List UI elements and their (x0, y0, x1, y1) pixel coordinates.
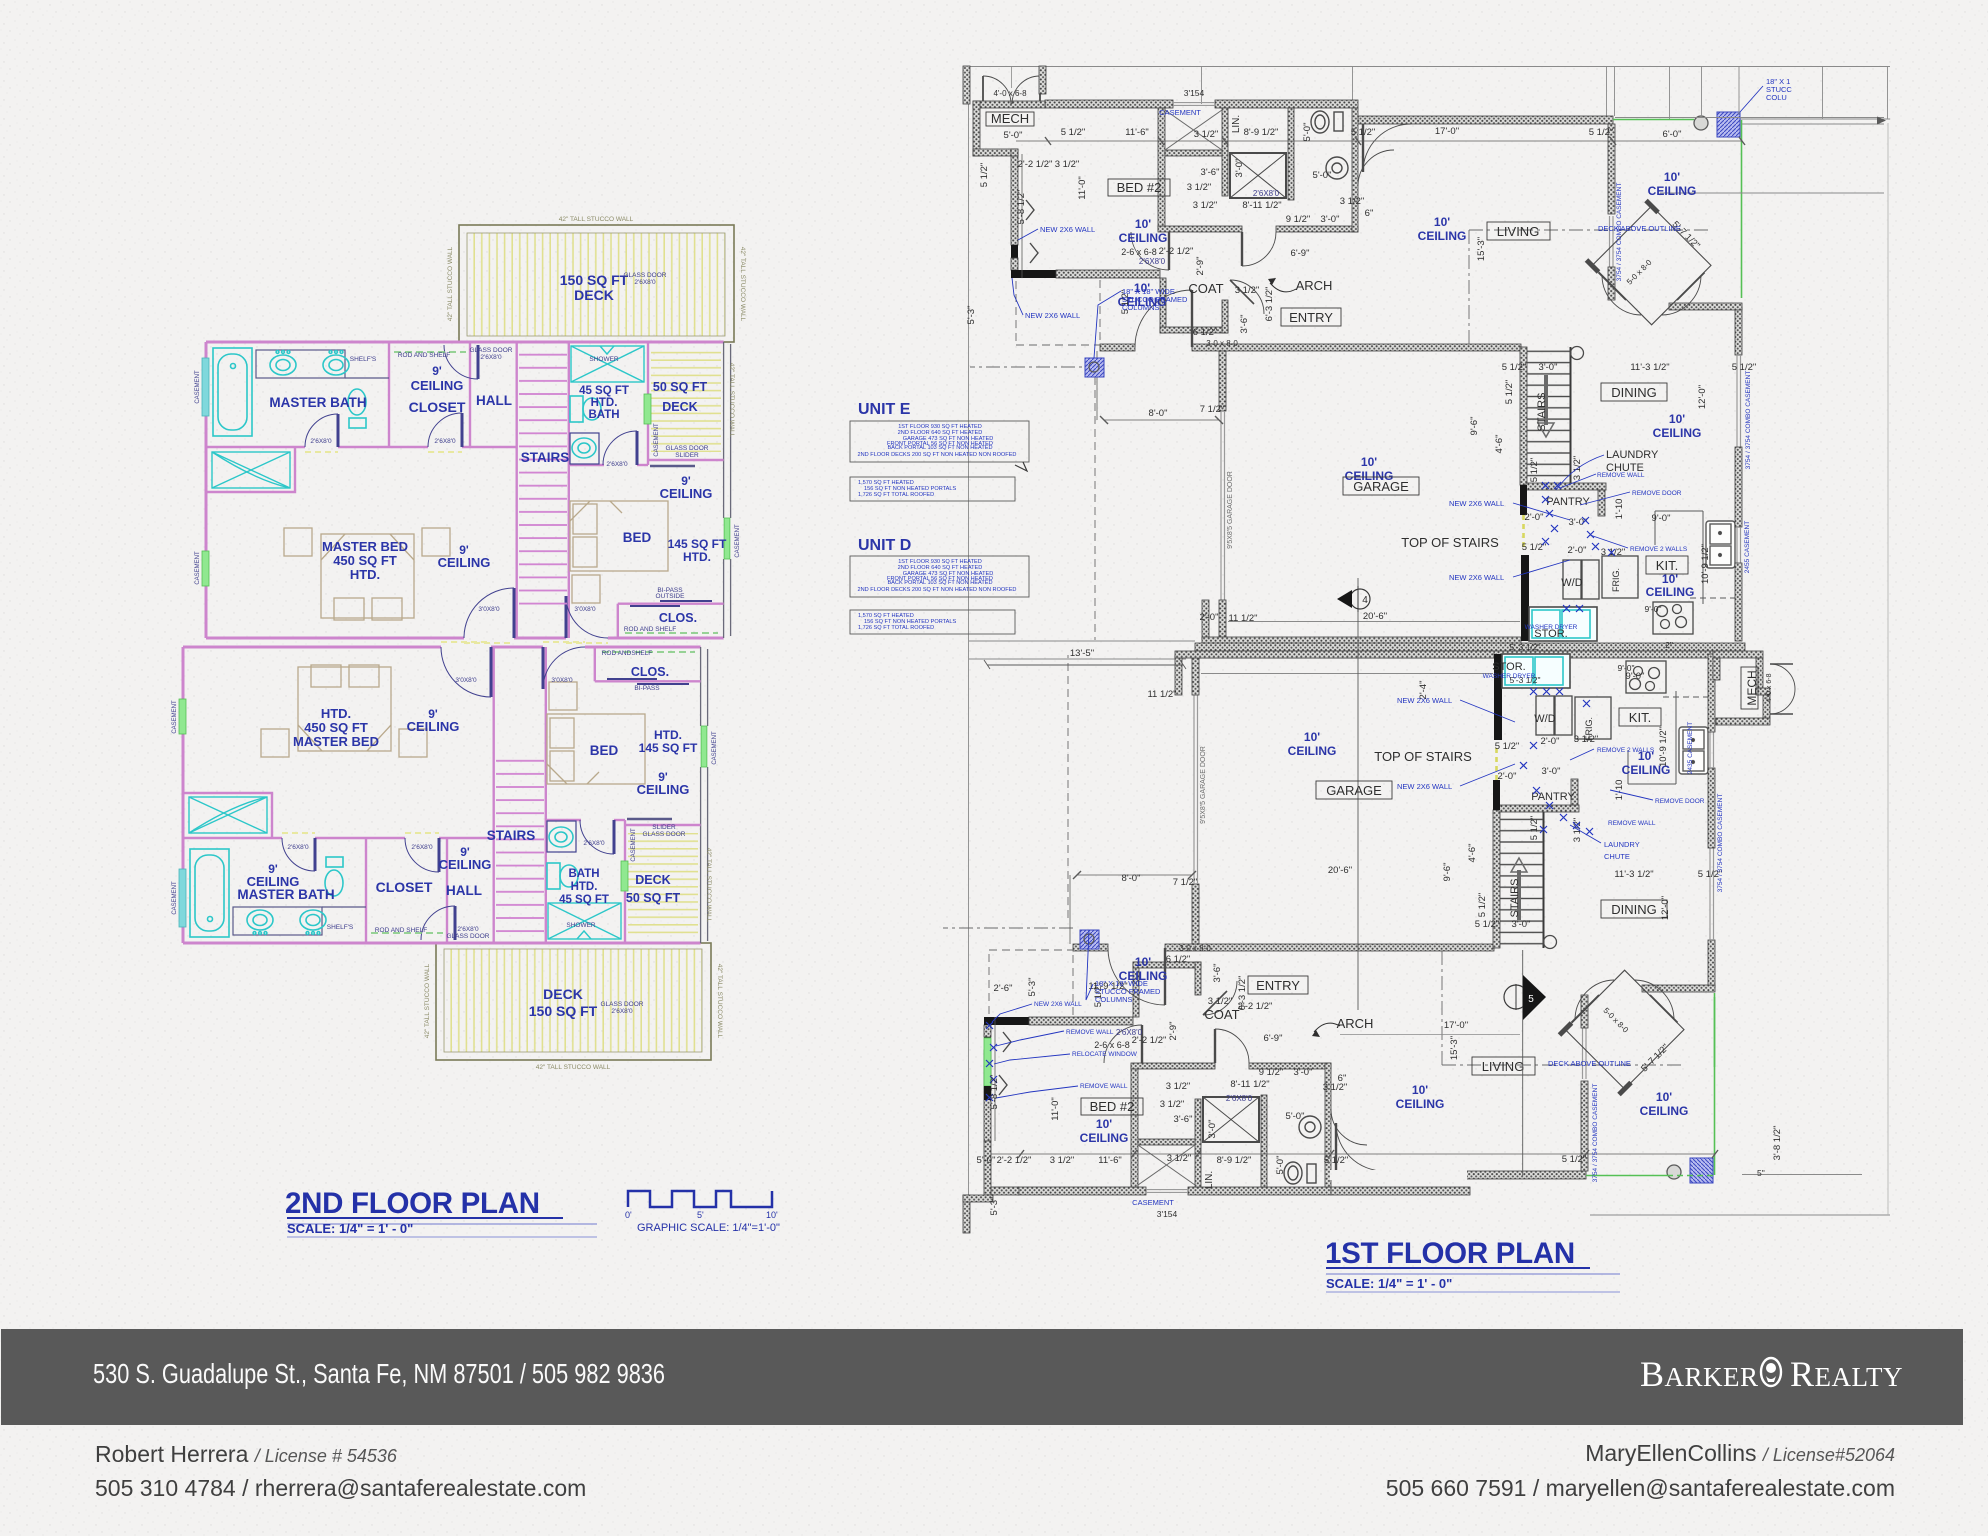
svg-text:3'-6": 3'-6" (1239, 315, 1250, 334)
svg-text:GLASS DOOR: GLASS DOOR (601, 1001, 644, 1008)
svg-text:17'-0": 17'-0" (1444, 1020, 1468, 1031)
svg-text:530 S. Guadalupe St., Santa Fe: 530 S. Guadalupe St., Santa Fe, NM 87501… (93, 1358, 665, 1389)
svg-text:CASEMENT: CASEMENT (735, 524, 741, 558)
svg-text:HTD.: HTD. (591, 397, 618, 409)
svg-text:2ND FLOOR PLAN: 2ND FLOOR PLAN (285, 1187, 540, 1220)
svg-text:8'-9 1/2": 8'-9 1/2" (1244, 127, 1279, 138)
svg-text:REMOVE WALL: REMOVE WALL (1597, 472, 1645, 479)
svg-text:5'-8 1/2": 5'-8 1/2" (989, 1075, 1000, 1110)
svg-text:RELOCATE WINDOW: RELOCATE WINDOW (1072, 1051, 1138, 1058)
svg-text:HTD.: HTD. (571, 881, 598, 893)
svg-text:5 1/2": 5 1/2" (1529, 816, 1540, 841)
svg-text:5'-8 1/2": 5'-8 1/2" (1016, 190, 1027, 225)
svg-text:5'-0": 5'-0" (1004, 130, 1023, 141)
svg-text:9 1/2": 9 1/2" (1286, 214, 1311, 225)
svg-text:STAIRS: STAIRS (487, 828, 536, 843)
svg-text:4'-0 x 6-8: 4'-0 x 6-8 (1766, 673, 1773, 702)
svg-text:10': 10' (1664, 170, 1680, 184)
svg-text:GLASS DOOR: GLASS DOOR (643, 831, 686, 838)
svg-text:CEILING: CEILING (1288, 744, 1337, 758)
svg-text:150 SQ FT: 150 SQ FT (560, 272, 629, 288)
svg-text:3 1/2": 3 1/2" (1208, 996, 1233, 1007)
svg-text:MASTER BATH: MASTER BATH (269, 395, 366, 410)
svg-text:BACK PORTAL 103 SQ FT NON HEAT: BACK PORTAL 103 SQ FT NON HEATED (887, 580, 992, 586)
svg-text:8'-11 1/2": 8'-11 1/2" (1242, 200, 1281, 211)
svg-text:3754 / 3754 COMBO CASEMENT: 3754 / 3754 COMBO CASEMENT (1717, 794, 1724, 893)
svg-text:BACK PORTAL 103 SQ FT NON HEAT: BACK PORTAL 103 SQ FT NON HEATED (887, 445, 992, 451)
svg-text:BED #2: BED #2 (1090, 1099, 1135, 1114)
svg-text:5": 5" (1757, 1168, 1765, 1178)
svg-text:3 1/2": 3 1/2" (1160, 1099, 1185, 1110)
svg-text:CASEMENT: CASEMENT (172, 700, 178, 734)
svg-text:BED: BED (623, 530, 652, 545)
svg-text:7 1/2": 7 1/2" (1173, 877, 1198, 888)
svg-text:GLASS DOOR: GLASS DOOR (666, 445, 709, 452)
svg-text:CEILING: CEILING (1640, 1104, 1689, 1118)
svg-text:2'6X8'0: 2'6X8'0 (583, 840, 605, 847)
svg-text:CASEMENT: CASEMENT (654, 423, 660, 457)
svg-text:PANTRY: PANTRY (1546, 496, 1590, 508)
svg-text:10'-9 1/2": 10'-9 1/2" (1658, 727, 1669, 767)
svg-text:2'-2 1/2": 2'-2 1/2" (997, 1155, 1032, 1166)
svg-text:WASHER DRYER: WASHER DRYER (1525, 624, 1578, 631)
svg-text:2'-0": 2'-0" (1200, 612, 1219, 623)
svg-text:3'0X8'0: 3'0X8'0 (574, 606, 596, 613)
svg-text:42" TALL STUCCO WALL: 42" TALL STUCCO WALL (536, 1064, 611, 1071)
svg-text:450 SQ FT: 450 SQ FT (333, 553, 397, 568)
svg-text:42" TALL STUCCO WALL: 42" TALL STUCCO WALL (447, 246, 454, 321)
svg-text:11'-6": 11'-6" (1125, 127, 1149, 138)
svg-text:10': 10' (1669, 412, 1685, 426)
svg-text:450 SQ FT: 450 SQ FT (304, 720, 368, 735)
svg-text:KIT.: KIT. (1629, 710, 1651, 725)
svg-text:17'-0": 17'-0" (1435, 126, 1459, 137)
svg-text:CLOS.: CLOS. (631, 665, 669, 679)
svg-text:COLUMNS: COLUMNS (1122, 303, 1160, 312)
svg-text:REMOVE WALL: REMOVE WALL (1080, 1083, 1128, 1090)
svg-text:0': 0' (625, 1210, 632, 1220)
svg-text:NEW 2X6 WALL: NEW 2X6 WALL (1040, 225, 1095, 234)
svg-text:NEW 2X6 WALL: NEW 2X6 WALL (1449, 499, 1504, 508)
svg-text:CEILING: CEILING (1648, 184, 1697, 198)
svg-text:42" TALL STUCCO WALL: 42" TALL STUCCO WALL (705, 848, 712, 923)
svg-text:2ND FLOOR DECKS 200 SQ FT NON: 2ND FLOOR DECKS 200 SQ FT NON HEATED NON… (858, 587, 1017, 593)
svg-text:5 1/2": 5 1/2" (1477, 893, 1488, 918)
svg-text:CLOSET: CLOSET (409, 399, 466, 415)
svg-text:ENTRY: ENTRY (1256, 978, 1300, 993)
svg-text:CASEMENT: CASEMENT (631, 828, 637, 862)
svg-text:ARCH: ARCH (1337, 1016, 1374, 1031)
svg-text:2'-6": 2'-6" (994, 983, 1013, 994)
svg-text:HTD.: HTD. (654, 728, 682, 742)
svg-text:2'-2 1/2": 2'-2 1/2" (1018, 159, 1053, 170)
svg-text:DECK: DECK (543, 986, 583, 1002)
svg-text:CASEMENT: CASEMENT (172, 881, 178, 915)
svg-text:5'-3": 5'-3" (989, 1197, 1000, 1216)
svg-text:CASEMENT: CASEMENT (1159, 108, 1201, 117)
svg-text:2'6X8'0: 2'6X8'0 (480, 354, 502, 361)
svg-text:11 1/2": 11 1/2" (1147, 689, 1176, 700)
svg-text:3 1/2": 3 1/2" (1194, 129, 1219, 140)
svg-text:3'-8 1/2": 3'-8 1/2" (1772, 1126, 1783, 1161)
svg-text:5 1/2": 5 1/2" (1504, 380, 1515, 405)
svg-text:9'5X8'5 GARAGE DOOR: 9'5X8'5 GARAGE DOOR (1200, 746, 1207, 824)
svg-text:HALL: HALL (446, 883, 482, 898)
svg-text:2'-2 1/2": 2'-2 1/2" (1159, 246, 1194, 257)
svg-text:12'-0": 12'-0" (1697, 385, 1708, 409)
svg-text:5'-0": 5'-0" (1286, 1111, 1305, 1122)
svg-text:DINING: DINING (1611, 902, 1657, 917)
svg-text:STOR.: STOR. (1492, 661, 1525, 673)
svg-text:1'-10: 1'-10 (1614, 499, 1625, 520)
svg-text:8'-9 1/2": 8'-9 1/2" (1217, 1155, 1252, 1166)
svg-text:TOP OF STAIRS: TOP OF STAIRS (1401, 535, 1499, 550)
svg-text:LIVING: LIVING (1497, 224, 1540, 239)
svg-text:6'-0": 6'-0" (1663, 129, 1682, 140)
svg-text:11'-0": 11'-0" (1077, 176, 1088, 200)
svg-text:3'-6": 3'-6" (1212, 964, 1223, 983)
svg-text:CEILING: CEILING (637, 782, 690, 797)
svg-text:6'-9": 6'-9" (1291, 248, 1310, 259)
svg-text:2'6X8'0: 2'6X8'0 (606, 461, 628, 468)
svg-text:5 1/2": 5 1/2" (1589, 127, 1614, 138)
svg-text:2'6X8'0: 2'6X8'0 (434, 438, 456, 445)
svg-text:2'6X8'0: 2'6X8'0 (1226, 1094, 1253, 1103)
svg-text:3 1/2": 3 1/2" (1572, 818, 1583, 843)
svg-text:2-6 x 6-8: 2-6 x 6-8 (1121, 247, 1157, 257)
svg-text:CEILING: CEILING (1418, 229, 1467, 243)
svg-text:2'6X8'0: 2'6X8'0 (1116, 1028, 1143, 1037)
svg-text:CHUTE: CHUTE (1604, 852, 1630, 861)
svg-text:3-0 x 8-0: 3-0 x 8-0 (1179, 944, 1211, 953)
svg-text:GLASS DOOR: GLASS DOOR (447, 933, 490, 940)
svg-text:9'-0": 9'-0" (1618, 663, 1635, 673)
svg-text:3'-6": 3'-6" (1201, 167, 1220, 178)
svg-text:10': 10' (1304, 730, 1320, 744)
svg-text:12'-0": 12'-0" (1660, 896, 1671, 920)
svg-text:8'-0": 8'-0" (1122, 873, 1141, 884)
svg-text:2": 2" (1665, 640, 1673, 650)
svg-text:BED: BED (590, 743, 619, 758)
svg-text:MASTER BED: MASTER BED (293, 734, 379, 749)
svg-text:2'6X8'0: 2'6X8'0 (611, 1008, 633, 1015)
svg-text:2435 CASEMENT: 2435 CASEMENT (1687, 722, 1694, 774)
svg-text:8'-0": 8'-0" (1149, 408, 1168, 419)
svg-text:1'-10: 1'-10 (1614, 780, 1625, 801)
svg-text:2'6X8'0: 2'6X8'0 (1253, 189, 1280, 198)
svg-text:HTD.: HTD. (321, 706, 351, 721)
svg-text:CEILING: CEILING (1080, 1131, 1129, 1145)
svg-text:3'-0": 3'-0" (1542, 766, 1561, 777)
svg-text:9 1/2": 9 1/2" (1259, 1067, 1284, 1078)
svg-text:3754 / 3754 COMBO CASEMENT: 3754 / 3754 COMBO CASEMENT (1616, 183, 1623, 282)
svg-text:5 1/2": 5 1/2" (1061, 127, 1086, 138)
svg-text:5 1/2": 5 1/2" (1495, 741, 1520, 752)
svg-text:2455 CASEMENT: 2455 CASEMENT (1744, 521, 1751, 573)
svg-text:5: 5 (1528, 994, 1534, 1005)
svg-text:W/D: W/D (1534, 713, 1555, 725)
svg-text:11'-0": 11'-0" (1050, 1097, 1061, 1121)
svg-text:DECK: DECK (635, 873, 670, 887)
svg-text:11'-3 1/2": 11'-3 1/2" (1614, 869, 1653, 880)
svg-text:13'-5": 13'-5" (1070, 648, 1094, 659)
svg-text:8'-11 1/2": 8'-11 1/2" (1230, 1079, 1269, 1090)
svg-text:5 1/2": 5 1/2" (1529, 458, 1540, 483)
svg-text:11 1/2": 11 1/2" (1228, 613, 1257, 624)
svg-text:150 SQ FT: 150 SQ FT (529, 1003, 598, 1019)
svg-text:LAUNDRY: LAUNDRY (1604, 840, 1640, 849)
svg-text:BATH: BATH (588, 409, 619, 421)
svg-text:BI-PASS: BI-PASS (634, 685, 660, 692)
svg-text:3'0X8'0: 3'0X8'0 (551, 677, 573, 684)
svg-text:ARCH: ARCH (1296, 278, 1333, 293)
svg-text:2'-0": 2'-0" (1568, 545, 1587, 556)
svg-text:CASEMENT: CASEMENT (1132, 1198, 1174, 1207)
svg-text:2'6X8'0: 2'6X8'0 (457, 926, 479, 933)
svg-text:DECK: DECK (662, 400, 697, 414)
svg-text:MASTER BATH: MASTER BATH (237, 887, 334, 902)
svg-text:5 1/2": 5 1/2" (979, 163, 990, 188)
svg-text:SHELF'S: SHELF'S (327, 924, 354, 931)
svg-text:COLU: COLU (1766, 93, 1787, 102)
svg-text:2'6X8'0: 2'6X8'0 (310, 438, 332, 445)
svg-text:COAT: COAT (1204, 1007, 1239, 1022)
svg-text:5 1/2": 5 1/2" (1502, 362, 1527, 373)
svg-text:GARAGE: GARAGE (1326, 783, 1382, 798)
svg-text:3 1/2": 3 1/2" (1340, 196, 1365, 207)
svg-text:4'-6": 4'-6" (1494, 435, 1505, 454)
svg-text:6'-9": 6'-9" (1264, 1033, 1283, 1044)
svg-text:5': 5' (697, 1210, 704, 1220)
svg-text:3 1/2": 3 1/2" (1235, 285, 1260, 296)
svg-text:3'-0": 3'-0" (1207, 1120, 1218, 1139)
svg-text:5'-3 1/2": 5'-3 1/2" (1509, 642, 1540, 652)
svg-text:1,726 SQ FT TOTAL ROOFED: 1,726 SQ FT TOTAL ROOFED (858, 492, 934, 498)
svg-text:NEW 2X6 WALL: NEW 2X6 WALL (1449, 573, 1504, 582)
svg-text:1ST FLOOR PLAN: 1ST FLOOR PLAN (1325, 1237, 1575, 1270)
svg-text:REMOVE 2 WALLS: REMOVE 2 WALLS (1630, 546, 1688, 553)
svg-text:5'-0": 5'-0" (1302, 123, 1313, 142)
svg-text:2'-0": 2'-0" (1525, 512, 1544, 523)
svg-text:10': 10' (766, 1210, 778, 1220)
svg-text:3'-6": 3'-6" (1174, 1114, 1193, 1125)
svg-text:6'-3 1/2": 6'-3 1/2" (1264, 287, 1275, 322)
svg-text:UNIT D: UNIT D (858, 537, 911, 554)
svg-text:NEW 2X6 WALL: NEW 2X6 WALL (1397, 782, 1452, 791)
svg-text:CEILING: CEILING (407, 719, 460, 734)
svg-text:15'-3": 15'-3" (1476, 237, 1487, 261)
svg-text:2'-0": 2'-0" (1498, 771, 1517, 782)
svg-text:3 1/2": 3 1/2" (1055, 159, 1080, 170)
svg-text:WASHER DRYER: WASHER DRYER (1483, 673, 1536, 680)
svg-text:145 SQ FT: 145 SQ FT (668, 537, 727, 551)
svg-text:SHELF'S: SHELF'S (350, 356, 377, 363)
svg-text:ROD AND SHELF: ROD AND SHELF (624, 626, 676, 633)
svg-text:3754 / 3754 COMBO CASEMENT: 3754 / 3754 COMBO CASEMENT (1592, 1084, 1599, 1183)
svg-text:SHOWER: SHOWER (589, 356, 619, 363)
svg-text:FRIG.: FRIG. (1611, 568, 1621, 592)
svg-text:5 1/2": 5 1/2" (1562, 1154, 1587, 1165)
svg-text:ENTRY: ENTRY (1289, 310, 1333, 325)
svg-text:CASEMENT: CASEMENT (195, 370, 201, 404)
svg-text:2'6X8'0: 2'6X8'0 (411, 844, 433, 851)
svg-text:MECH: MECH (991, 111, 1029, 126)
svg-text:2'6X8'0: 2'6X8'0 (287, 844, 309, 851)
svg-text:1,726 SQ FT TOTAL ROOFED: 1,726 SQ FT TOTAL ROOFED (858, 625, 934, 631)
svg-text:3'-0": 3'-0" (1512, 919, 1531, 930)
svg-text:9'5X8'5 GARAGE DOOR: 9'5X8'5 GARAGE DOOR (1227, 471, 1234, 549)
svg-text:42" TALL STUCCO WALL: 42" TALL STUCCO WALL (716, 964, 723, 1039)
svg-text:3 1/2": 3 1/2" (1601, 547, 1626, 558)
svg-text:BATH: BATH (568, 868, 599, 880)
svg-text:4'-0 x 6-8: 4'-0 x 6-8 (993, 89, 1027, 98)
svg-text:9'-6": 9'-6" (1469, 417, 1480, 436)
svg-text:50 SQ FT: 50 SQ FT (653, 380, 708, 394)
svg-text:6'-3 1/2": 6'-3 1/2" (1237, 976, 1248, 1011)
svg-text:NEW 2X6 WALL: NEW 2X6 WALL (1034, 1001, 1082, 1008)
svg-text:42" TALL STUCCO WALL: 42" TALL STUCCO WALL (728, 363, 735, 438)
svg-text:3'-0": 3'-0" (1539, 362, 1558, 373)
svg-text:NEW 2X6 WALL: NEW 2X6 WALL (1025, 311, 1080, 320)
svg-text:GRAPHIC SCALE: 1/4"=1'-0": GRAPHIC SCALE: 1/4"=1'-0" (637, 1222, 780, 1234)
svg-text:TOP OF STAIRS: TOP OF STAIRS (1374, 749, 1472, 764)
svg-text:3 1/2": 3 1/2" (1187, 182, 1212, 193)
svg-text:DECK ABOVE OUTLINE: DECK ABOVE OUTLINE (1598, 224, 1681, 233)
svg-text:CEILING: CEILING (1396, 1097, 1445, 1111)
svg-text:CEILING: CEILING (660, 486, 713, 501)
svg-text:6": 6" (1365, 208, 1374, 219)
svg-text:3'0X8'0: 3'0X8'0 (478, 606, 500, 613)
svg-text:9': 9' (432, 364, 442, 378)
svg-text:5 1/2": 5 1/2" (1475, 919, 1500, 930)
svg-text:KIT.: KIT. (1656, 558, 1678, 573)
svg-text:10': 10' (1434, 215, 1450, 229)
svg-text:10'-9 1/2": 10'-9 1/2" (1700, 544, 1711, 584)
svg-text:REMOVE WALL: REMOVE WALL (1066, 1029, 1114, 1036)
svg-text:50 SQ FT: 50 SQ FT (626, 891, 681, 905)
svg-text:CLOS.: CLOS. (659, 611, 697, 625)
svg-text:CASEMENT: CASEMENT (195, 551, 201, 585)
svg-text:4'-6": 4'-6" (1467, 844, 1478, 863)
svg-text:5'-0": 5'-0" (977, 1155, 996, 1166)
svg-text:10': 10' (1135, 955, 1151, 969)
svg-text:3754 / 3754 COMBO CASEMENT: 3754 / 3754 COMBO CASEMENT (1745, 371, 1752, 470)
svg-text:3'-0": 3'-0" (1234, 159, 1245, 178)
svg-text:505 660 7591 / maryellen@santa: 505 660 7591 / maryellen@santaferealesta… (1386, 1475, 1895, 1501)
svg-text:5'-0": 5'-0" (1275, 1156, 1286, 1175)
svg-text:MASTER BED: MASTER BED (322, 539, 408, 554)
svg-text:5'-3": 5'-3" (1027, 978, 1038, 997)
svg-text:SCALE: 1/4" = 1' - 0": SCALE: 1/4" = 1' - 0" (1326, 1276, 1452, 1291)
svg-text:CEILING: CEILING (1653, 426, 1702, 440)
svg-text:REMOVE DOOR: REMOVE DOOR (1655, 798, 1705, 805)
svg-text:10': 10' (1361, 455, 1377, 469)
svg-text:45 SQ FT: 45 SQ FT (559, 894, 609, 906)
svg-text:REMOVE WALL: REMOVE WALL (1608, 820, 1656, 827)
svg-text:COAT: COAT (1188, 281, 1223, 296)
svg-text:STAIRS: STAIRS (521, 450, 570, 465)
svg-text:REMOVE 2 WALLS: REMOVE 2 WALLS (1597, 747, 1655, 754)
svg-text:SCALE: 1/4" = 1' - 0": SCALE: 1/4" = 1' - 0" (287, 1221, 413, 1236)
svg-text:3 1/2": 3 1/2" (1193, 200, 1218, 211)
svg-text:STAIRS: STAIRS (1536, 393, 1548, 432)
svg-text:2-6 x 6-8: 2-6 x 6-8 (1094, 1040, 1130, 1050)
svg-text:7 1/2": 7 1/2" (1200, 404, 1225, 415)
svg-text:GLASS DOOR: GLASS DOOR (470, 347, 513, 354)
svg-text:505 310 4784 / rherrera@santaf: 505 310 4784 / rherrera@santaferealestat… (95, 1475, 586, 1501)
svg-text:3'-0": 3'-0" (1321, 214, 1340, 225)
svg-text:GLASS DOOR: GLASS DOOR (624, 272, 667, 279)
svg-text:HTD.: HTD. (350, 567, 380, 582)
svg-text:MECH: MECH (1745, 670, 1759, 705)
svg-text:42" TALL STUCCO WALL: 42" TALL STUCCO WALL (739, 247, 746, 322)
svg-text:CEILING: CEILING (1646, 585, 1695, 599)
svg-text:20'-6": 20'-6" (1363, 611, 1387, 622)
svg-text:9'-6": 9'-6" (1442, 863, 1453, 882)
svg-text:5 1/2": 5 1/2" (1732, 362, 1757, 373)
svg-text:11'-6": 11'-6" (1098, 1155, 1122, 1166)
svg-text:3 1/2": 3 1/2" (1167, 1153, 1192, 1164)
svg-text:6 1/2": 6 1/2" (1193, 327, 1218, 338)
svg-text:CEILING: CEILING (1119, 231, 1168, 245)
svg-text:HTD.: HTD. (683, 550, 711, 564)
svg-text:10': 10' (1412, 1083, 1428, 1097)
svg-text:2'-9": 2'-9" (1168, 1022, 1179, 1041)
svg-text:3'-0": 3'-0" (1294, 1067, 1313, 1078)
svg-text:NEW 2X6 WALL: NEW 2X6 WALL (1397, 696, 1452, 705)
svg-text:3'154: 3'154 (1157, 1209, 1178, 1219)
svg-text:5 1/2": 5 1/2" (1324, 1155, 1349, 1166)
svg-text:LIN.: LIN. (1204, 1171, 1215, 1189)
svg-text:10': 10' (1135, 217, 1151, 231)
svg-text:DECK: DECK (574, 287, 614, 303)
svg-text:3'-0": 3'-0" (1569, 517, 1588, 528)
svg-text:LIVING: LIVING (1482, 1059, 1525, 1074)
svg-text:5 1/2": 5 1/2" (1351, 127, 1376, 138)
svg-text:OUTSIDE: OUTSIDE (656, 593, 686, 600)
svg-text:CEILING: CEILING (438, 555, 491, 570)
svg-text:CEILING: CEILING (411, 378, 464, 393)
svg-text:145 SQ FT: 145 SQ FT (639, 741, 698, 755)
svg-text:2'-0": 2'-0" (1541, 736, 1560, 747)
svg-text:42" TALL STUCCO WALL: 42" TALL STUCCO WALL (424, 963, 431, 1038)
svg-text:DECK ABOVE OUTLINE: DECK ABOVE OUTLINE (1548, 1059, 1631, 1068)
svg-text:4: 4 (1362, 595, 1368, 606)
svg-text:3 1/2": 3 1/2" (1574, 734, 1599, 745)
svg-text:CASEMENT: CASEMENT (712, 731, 718, 765)
svg-text:5'-3": 5'-3" (966, 306, 977, 325)
svg-text:15'-3": 15'-3" (1449, 1036, 1460, 1060)
svg-text:ROD AND SHELF: ROD AND SHELF (398, 352, 450, 359)
svg-text:PANTRY: PANTRY (1531, 791, 1575, 803)
svg-text:COLUMNS: COLUMNS (1095, 995, 1133, 1004)
svg-text:DINING: DINING (1611, 385, 1657, 400)
svg-text:STAIRS: STAIRS (1509, 879, 1521, 918)
svg-text:42" TALL STUCCO WALL: 42" TALL STUCCO WALL (559, 216, 634, 223)
svg-text:W/D: W/D (1561, 577, 1582, 589)
svg-text:10': 10' (1096, 1117, 1112, 1131)
svg-text:20'-6": 20'-6" (1328, 865, 1352, 876)
svg-text:3'154: 3'154 (1184, 88, 1205, 98)
svg-text:REMOVE DOOR: REMOVE DOOR (1632, 490, 1682, 497)
svg-text:SHOWER: SHOWER (566, 922, 596, 929)
svg-text:GARAGE: GARAGE (1353, 479, 1409, 494)
svg-text:LIN.: LIN. (1231, 115, 1242, 133)
svg-text:BI-PASS: BI-PASS (657, 587, 683, 594)
svg-text:2ND FLOOR DECKS 200 SQ FT NON: 2ND FLOOR DECKS 200 SQ FT NON HEATED NON… (858, 452, 1017, 458)
svg-text:2'-9": 2'-9" (1195, 257, 1206, 276)
svg-text:9'-0": 9'-0" (1652, 513, 1671, 524)
